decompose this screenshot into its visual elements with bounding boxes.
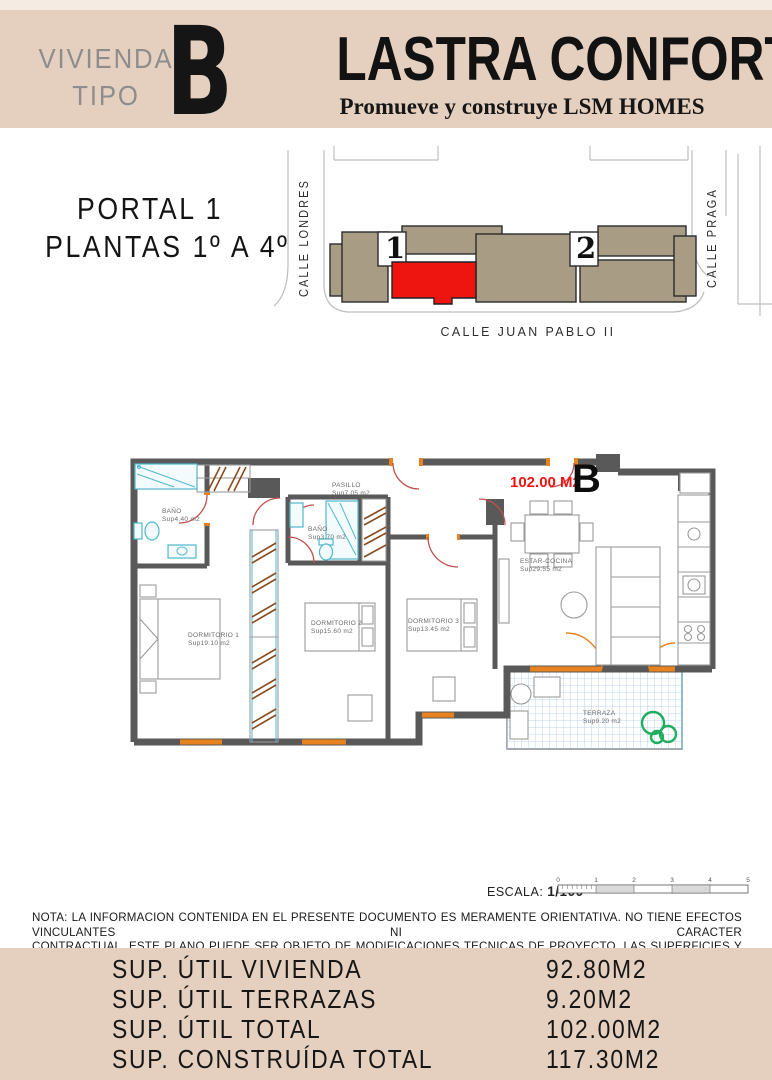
unit-type-line2: TIPO <box>34 77 178 114</box>
scale-tick: 4 <box>708 877 712 884</box>
room-label: BAÑO <box>162 506 182 515</box>
header-band: VIVIENDA TIPO B LASTRA CONFORT Promueve … <box>0 10 772 128</box>
room-label: ESTAR-COCINA <box>520 558 573 565</box>
unit-letter: B <box>166 14 224 130</box>
portal-1-number: 1 <box>385 231 405 265</box>
room-area-label: Sup15.60 m2 <box>311 628 353 635</box>
highlighted-unit <box>392 262 476 304</box>
room-area-label: Sup19.10 m2 <box>188 640 230 647</box>
building-blocks: 1 2 <box>330 226 696 304</box>
title-block: LASTRA CONFORT Promueve y construye LSM … <box>290 30 754 120</box>
site-plan-svg: 1 2 CALLE LONDRES CALLE PRAGA CALLE JUAN… <box>268 146 772 364</box>
building-block <box>476 234 576 302</box>
portal-2-number: 2 <box>576 231 596 265</box>
summary-row: SUP. CONSTRUÍDA TOTAL 117.30M2 <box>0 1044 772 1074</box>
header-top-strip <box>0 0 772 10</box>
surface-summary: SUP. ÚTIL VIVIENDA 92.80M2 SUP. ÚTIL TER… <box>0 948 772 1080</box>
total-area-label: 102.00 M2 <box>510 474 581 491</box>
summary-label: SUP. ÚTIL VIVIENDA <box>112 954 362 985</box>
scale-tick: 5 <box>746 877 750 884</box>
page-title: LASTRA CONFORT <box>336 30 707 90</box>
scale-tick: 3 <box>670 877 674 884</box>
room-label: TERRAZA <box>583 710 616 717</box>
summary-value: 117.30M2 <box>546 1044 660 1075</box>
portal-label: PORTAL 1 PLANTAS 1º A 4º <box>45 190 255 266</box>
summary-label: SUP. ÚTIL TOTAL <box>112 1014 322 1045</box>
summary-label: SUP. CONSTRUÍDA TOTAL <box>112 1044 433 1075</box>
sink-2 <box>290 503 303 527</box>
street-label-left: CALLE LONDRES <box>296 179 311 297</box>
toilet-2 <box>320 544 333 560</box>
summary-label: SUP. ÚTIL TERRAZAS <box>112 984 377 1015</box>
building-block <box>598 226 686 256</box>
toilet-1 <box>145 522 159 540</box>
unit-type-label: VIVIENDA TIPO <box>34 40 178 114</box>
sofa <box>596 547 660 665</box>
fridge <box>680 473 710 493</box>
scale-tick: 1 <box>594 877 598 884</box>
summary-value: 92.80M2 <box>546 954 647 985</box>
scale-bar: 0 1 2 3 4 5 <box>551 874 751 898</box>
plan-unit-letter: B <box>572 457 601 501</box>
portal-line: PORTAL 1 <box>45 190 255 228</box>
floor-plan-svg: BAÑO Sup4.40 m2 PASILLO Sup7.05 m2 BAÑO … <box>122 447 718 777</box>
side-table <box>561 592 587 618</box>
room-area-label: Sup9.20 m2 <box>583 718 621 725</box>
tv-bench <box>499 559 509 623</box>
building-block <box>674 236 696 296</box>
room-area-label: Sup7.05 m2 <box>332 490 370 497</box>
terraza-chair <box>534 677 560 697</box>
room-label: PASILLO <box>332 482 361 489</box>
terraza-table <box>511 684 531 704</box>
summary-row: SUP. ÚTIL TERRAZAS 9.20M2 <box>0 984 772 1014</box>
plantas-line: PLANTAS 1º A 4º <box>45 228 255 266</box>
note-line-1: NOTA: LA INFORMACION CONTENIDA EN EL PRE… <box>32 911 742 940</box>
scale-tick: 2 <box>632 877 636 884</box>
scale-label: ESCALA: <box>487 885 543 899</box>
unit-type-line1: VIVIENDA <box>34 40 178 77</box>
room-area-label: Sup3.70 m2 <box>308 534 346 541</box>
room-area-label: Sup4.40 m2 <box>162 516 200 523</box>
summary-row: SUP. ÚTIL TOTAL 102.00M2 <box>0 1014 772 1044</box>
summary-value: 9.20M2 <box>546 984 633 1015</box>
brochure-page: VIVIENDA TIPO B LASTRA CONFORT Promueve … <box>0 0 772 1080</box>
terraza-chair <box>510 711 528 739</box>
dining-table <box>525 515 579 553</box>
room-area-label: Sup29.55 m2 <box>520 566 562 573</box>
scale-tick: 0 <box>556 877 560 884</box>
bed-1 <box>140 599 220 679</box>
summary-value: 102.00M2 <box>546 1014 662 1045</box>
room-label: DORMITORIO 2 <box>311 620 362 627</box>
summary-row: SUP. ÚTIL VIVIENDA 92.80M2 <box>0 954 772 984</box>
page-subtitle: Promueve y construye LSM HOMES <box>290 94 754 120</box>
room-label: DORMITORIO 1 <box>188 632 239 639</box>
room-area-label: Sup13.45 m2 <box>408 626 450 633</box>
street-label-bottom: CALLE JUAN PABLO II <box>441 324 616 339</box>
room-label: DORMITORIO 3 <box>408 618 459 625</box>
room-label: BAÑO <box>308 524 328 533</box>
street-label-right: CALLE PRAGA <box>704 188 719 288</box>
